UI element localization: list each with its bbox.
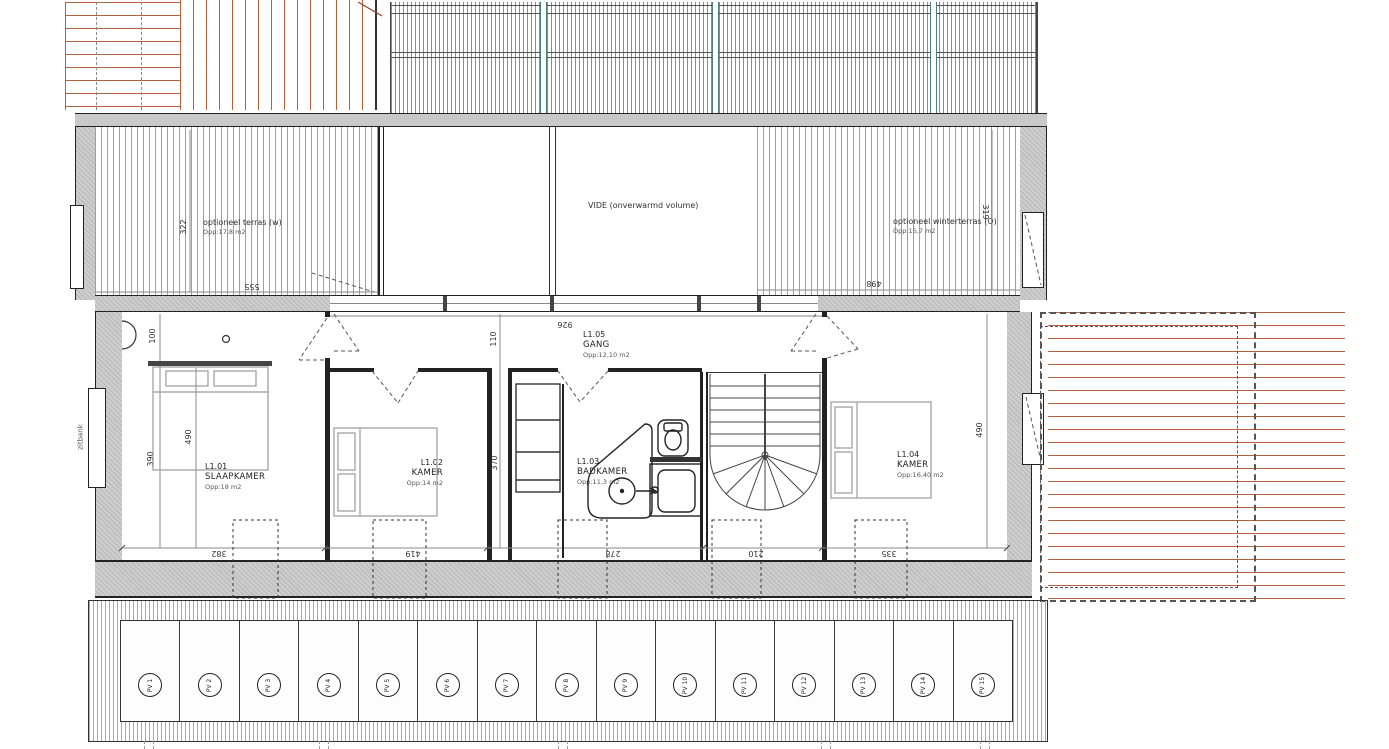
grid-drop-line <box>319 741 329 749</box>
wall-gang-l102 <box>330 368 374 372</box>
room-name: KAMER <box>383 468 443 479</box>
room-label-kamer4: L1.04 KAMER Opp:16,40 m2 <box>897 450 944 479</box>
room-id: L1.03 <box>577 457 627 467</box>
pv-panel: PV 5 <box>359 621 418 721</box>
vide-label: VIDE (onverwarmd volume) <box>588 201 698 211</box>
terrace-west-label: optioneel terras (w) Opp:17,8 m2 <box>203 218 282 237</box>
deck-north <box>180 0 377 110</box>
floor-plan: optioneel terras (w) Opp:17,8 m2 VIDE (o… <box>0 0 1389 749</box>
pv-label: PV 1 <box>147 678 154 691</box>
wall-gang-bath <box>510 368 558 372</box>
pv-panel: PV 13 <box>835 621 894 721</box>
grid-drop-line <box>821 741 831 749</box>
pv-label: PV 8 <box>563 678 570 691</box>
pv-badge: PV 5 <box>376 673 400 697</box>
vide <box>384 127 757 295</box>
pv-badge: PV 2 <box>198 673 222 697</box>
window-post <box>697 296 701 311</box>
room-area: Opp:18 m2 <box>205 483 265 491</box>
pv-label: PV 3 <box>266 678 273 691</box>
terrace-east-label: optioneel winterterras (O) Opp:15,7 m2 <box>893 217 997 236</box>
pv-label: PV 4 <box>325 678 332 691</box>
wall-niche-symbol <box>122 321 136 349</box>
glazing-line <box>330 303 818 304</box>
sink-symbol <box>650 464 702 516</box>
room-label-slaapkamer: L1.01 SLAAPKAMER Opp:18 m2 <box>205 462 265 491</box>
dim-window-4: 210 <box>748 549 763 557</box>
wall-gang-bath <box>608 368 702 372</box>
wall-bath-stair <box>706 372 708 560</box>
pv-panel: PV 14 <box>894 621 953 721</box>
deck-joint-dash <box>96 2 97 110</box>
pv-panel: PV 11 <box>716 621 775 721</box>
dim-kamer4-depth: 490 <box>976 422 984 437</box>
roof-post <box>930 2 937 113</box>
window-post <box>550 296 554 311</box>
dim-slaapkamer-depth: 390 <box>147 451 155 466</box>
dim-terrace-east-width: 498 <box>866 279 881 287</box>
vide-title: VIDE (onverwarmd volume) <box>588 201 698 211</box>
west-terrace-window <box>70 205 84 289</box>
grid-drop-line <box>144 741 154 749</box>
room-name: GANG <box>583 340 630 351</box>
pv-badge: PV 1 <box>138 673 162 697</box>
wall-stub <box>325 312 330 317</box>
wall-bath-stair <box>700 372 703 560</box>
pv-label: PV 6 <box>444 678 451 691</box>
pv-panel: PV 10 <box>656 621 715 721</box>
pv-panel: PV 8 <box>537 621 596 721</box>
window-post <box>757 296 761 311</box>
pv-label: PV 9 <box>622 678 629 691</box>
spiral-stair-symbol <box>710 374 820 510</box>
pv-panel: PV 6 <box>418 621 477 721</box>
wall-stair-l104 <box>822 358 827 560</box>
pv-panel: PV 9 <box>597 621 656 721</box>
dim-kamer2-depth: 370 <box>491 455 499 470</box>
mid-wall-west <box>95 295 330 312</box>
north-wall <box>75 113 1047 127</box>
room-name: KAMER <box>897 460 944 471</box>
deck-joint-dash <box>141 2 142 110</box>
roof-post <box>712 2 719 113</box>
pv-panel-row: PV 1 PV 2 PV 3 PV 4 PV 5 PV 6 PV 7 PV 8 … <box>120 620 1013 722</box>
mid-wall-east <box>818 295 1020 312</box>
terrace-west-title: optioneel terras (w) <box>203 218 282 228</box>
pv-badge: PV 8 <box>555 673 579 697</box>
pv-label: PV 15 <box>979 676 986 693</box>
room-area: Opp:11,3 m2 <box>577 478 627 486</box>
pv-badge: PV 12 <box>792 673 816 697</box>
room-label-gang: L1.05 GANG Opp:12,10 m2 <box>583 330 630 359</box>
dimension-ticks <box>119 545 1010 551</box>
pv-label: PV 14 <box>920 676 927 693</box>
pv-badge: PV 14 <box>911 673 935 697</box>
grid-drop-line <box>980 741 990 749</box>
pv-badge: PV 3 <box>257 673 281 697</box>
wall-gang-l102 <box>418 368 489 372</box>
room-id: L1.04 <box>897 450 944 460</box>
east-terrace-window <box>1022 212 1044 288</box>
room-id: L1.01 <box>205 462 265 472</box>
room-label-badkamer: L1.03 BADKAMER Opp:11,3 m2 <box>577 457 627 486</box>
terrace-west-area: Opp:17,8 m2 <box>203 228 282 236</box>
dim-terrace-west-width: 555 <box>244 282 259 290</box>
wall-l101-l102 <box>325 358 330 560</box>
pv-panel: PV 1 <box>121 621 180 721</box>
pv-panel: PV 4 <box>299 621 358 721</box>
pv-label: PV 5 <box>385 678 392 691</box>
pv-label: PV 11 <box>741 676 748 693</box>
dim-terrace-west-depth: 322 <box>180 219 188 234</box>
ceiling-point-symbol <box>223 336 230 343</box>
dim-slaapkamer-bed: 490 <box>185 429 193 444</box>
pv-label: PV 13 <box>860 676 867 693</box>
pv-label: PV 7 <box>504 678 511 691</box>
deck-north-west <box>65 2 180 110</box>
deck-east-outline-inner <box>1040 326 1238 588</box>
pv-badge: PV 9 <box>614 673 638 697</box>
bed-symbols <box>148 361 931 516</box>
room-area: Opp:16,40 m2 <box>897 471 944 479</box>
dim-wall-offset: 100 <box>149 328 157 343</box>
zitbank-window <box>88 388 106 488</box>
pv-label: PV 12 <box>801 676 808 693</box>
south-wall <box>95 560 1032 598</box>
pv-label: PV 10 <box>682 676 689 693</box>
dim-window-2: 419 <box>405 549 420 557</box>
toilet-symbol <box>658 420 688 456</box>
dim-window-1: 382 <box>211 549 226 557</box>
room-id: L1.02 <box>383 458 443 468</box>
pv-panel: PV 7 <box>478 621 537 721</box>
room-area: Opp:12,10 m2 <box>583 351 630 359</box>
terrace-west <box>95 127 378 295</box>
room-name: SLAAPKAMER <box>205 472 265 483</box>
gang-window-strip <box>330 295 818 312</box>
pv-badge: PV 13 <box>852 673 876 697</box>
pv-badge: PV 11 <box>733 673 757 697</box>
dim-gang-width: 926 <box>557 320 572 328</box>
stair-gang-edge <box>708 372 822 373</box>
pv-panel: PV 15 <box>954 621 1012 721</box>
pv-panel: PV 3 <box>240 621 299 721</box>
vide-post <box>549 127 556 295</box>
pv-panel: PV 12 <box>775 621 834 721</box>
room-label-kamer2: L1.02 KAMER Opp:14 m2 <box>383 458 443 487</box>
window-post <box>443 296 447 311</box>
pv-badge: PV 6 <box>436 673 460 697</box>
dim-gang-depth: 110 <box>490 331 498 346</box>
terrace-east-area: Opp:15,7 m2 <box>893 227 997 235</box>
dim-terrace-east-depth: 319 <box>981 204 989 219</box>
room-area: Opp:14 m2 <box>383 479 443 487</box>
room-name: BADKAMER <box>577 467 627 478</box>
pv-badge: PV 4 <box>317 673 341 697</box>
room-id: L1.05 <box>583 330 630 340</box>
dim-window-3: 278 <box>605 549 620 557</box>
wall-bath-west <box>508 368 512 560</box>
grid-drop-line <box>558 741 568 749</box>
pv-panel: PV 2 <box>180 621 239 721</box>
wall-stub <box>822 312 827 317</box>
pv-badge: PV 10 <box>673 673 697 697</box>
pv-badge: PV 15 <box>971 673 995 697</box>
zitbank-label: zitbank <box>78 424 85 450</box>
dim-window-5: 335 <box>881 549 896 557</box>
pv-label: PV 2 <box>206 678 213 691</box>
closet-symbol <box>516 384 560 492</box>
roof-post <box>540 2 547 113</box>
pv-badge: PV 7 <box>495 673 519 697</box>
